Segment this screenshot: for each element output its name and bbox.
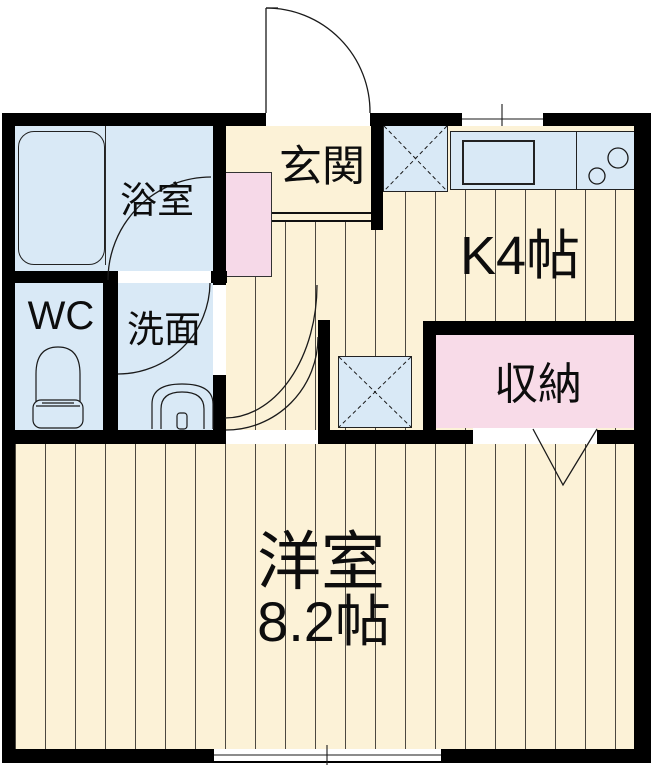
entrance-label: 玄関 xyxy=(242,146,402,189)
main-room-window-opening xyxy=(214,749,441,761)
kitchen-counter-divider xyxy=(576,131,577,190)
entrance-door-opening xyxy=(266,113,370,126)
wall-closet-top xyxy=(423,321,637,335)
closet-door-opening xyxy=(473,428,597,444)
entrance-door xyxy=(266,8,370,113)
wall-corridor-stub xyxy=(318,320,330,444)
washroom-floor xyxy=(118,283,213,430)
main-room-door-opening xyxy=(226,430,318,444)
closet-label: 収納 xyxy=(438,363,638,407)
kitchen-label: K4帖 xyxy=(420,229,620,283)
kitchen-sink xyxy=(462,140,535,185)
bathroom-label: 浴室 xyxy=(77,182,237,219)
entrance-step xyxy=(272,212,371,222)
washer-space xyxy=(338,356,412,428)
washroom-label: 洗面 xyxy=(84,311,244,348)
kitchen-window-opening xyxy=(462,113,543,126)
main-room-size-label: 8.2帖 xyxy=(199,594,449,650)
bath-door-opening xyxy=(118,271,211,283)
floor-plan: 浴室 WC 洗面 玄関 K4帖 収納 洋室 8.2帖 xyxy=(0,0,652,766)
main-room-label: 洋室 xyxy=(196,530,446,594)
wall-closet-left xyxy=(423,321,436,444)
